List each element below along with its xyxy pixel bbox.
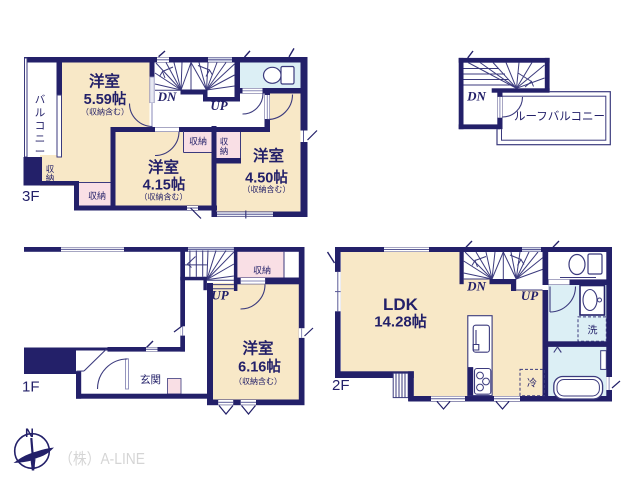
svg-text:納: 納 (46, 173, 55, 183)
svg-text:納: 納 (220, 146, 229, 156)
svg-text:（収納含む）: （収納含む） (140, 192, 188, 202)
svg-text:6.16帖: 6.16帖 (238, 358, 281, 376)
svg-text:ニ: ニ (35, 133, 46, 145)
svg-text:UP: UP (521, 288, 539, 303)
svg-text:N: N (25, 426, 34, 440)
svg-text:玄関: 玄関 (140, 373, 161, 386)
svg-text:洋室: 洋室 (148, 158, 179, 177)
svg-text:UP: UP (210, 98, 228, 113)
svg-text:洋室: 洋室 (253, 146, 284, 165)
svg-text:バ: バ (35, 94, 46, 106)
svg-text:DN: DN (466, 89, 486, 104)
svg-text:3F: 3F (22, 188, 40, 205)
svg-text:収納: 収納 (253, 265, 271, 276)
svg-text:LDK: LDK (383, 295, 419, 314)
svg-text:洋室: 洋室 (242, 339, 273, 358)
svg-text:収納: 収納 (88, 190, 106, 201)
svg-text:収納: 収納 (189, 136, 207, 147)
svg-text:4.50帖: 4.50帖 (245, 169, 288, 187)
svg-text:14.28帖: 14.28帖 (374, 313, 427, 331)
svg-text:DN: DN (466, 279, 486, 294)
svg-text:（収納含む）: （収納含む） (81, 107, 129, 117)
svg-text:冷: 冷 (527, 377, 537, 390)
svg-text:洋室: 洋室 (89, 72, 120, 91)
svg-text:ー: ー (35, 146, 46, 158)
svg-text:DN: DN (157, 89, 177, 104)
svg-text:ル: ル (35, 107, 46, 119)
svg-text:収: 収 (220, 137, 229, 147)
svg-text:5.59帖: 5.59帖 (84, 90, 127, 108)
svg-text:1F: 1F (22, 379, 40, 396)
svg-text:4.15帖: 4.15帖 (143, 176, 186, 194)
svg-text:コ: コ (35, 120, 46, 132)
svg-text:2F: 2F (332, 377, 350, 394)
svg-text:（株）A-LINE: （株）A-LINE (59, 450, 145, 468)
svg-text:（収納含む）: （収納含む） (243, 184, 291, 194)
svg-text:ルーフバルコニー: ルーフバルコニー (514, 110, 605, 123)
svg-text:（収納含む）: （収納含む） (234, 376, 282, 386)
svg-text:洗: 洗 (588, 325, 598, 337)
svg-text:UP: UP (211, 288, 229, 303)
